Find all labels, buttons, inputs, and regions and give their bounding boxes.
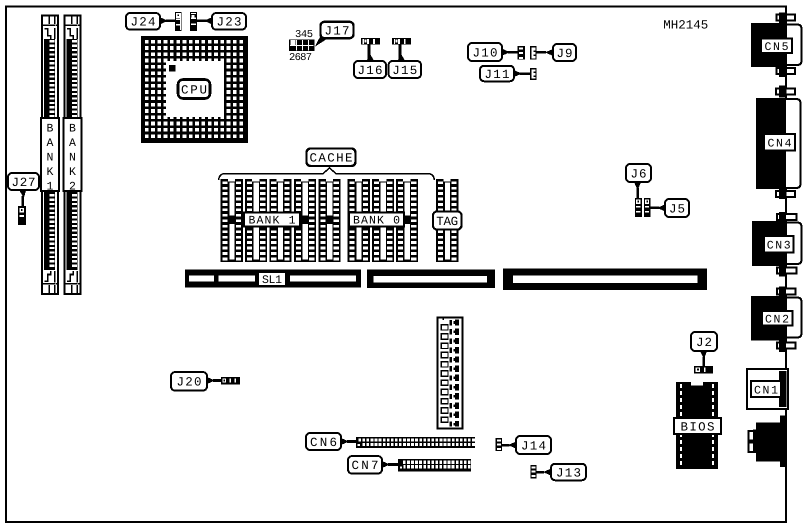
svg-text:CN3: CN3	[767, 240, 791, 253]
svg-text:CPU: CPU	[181, 83, 207, 97]
svg-text:TAG: TAG	[436, 215, 458, 229]
svg-text:CN1: CN1	[754, 384, 778, 397]
svg-text:2: 2	[69, 181, 76, 194]
svg-text:CN5: CN5	[765, 41, 789, 54]
svg-text:BIOS: BIOS	[681, 420, 715, 434]
svg-text:A: A	[69, 137, 76, 150]
svg-text:1: 1	[47, 181, 54, 194]
svg-text:K: K	[69, 166, 76, 179]
svg-text:N: N	[69, 152, 76, 165]
svg-text:2687: 2687	[289, 52, 312, 64]
svg-text:J5: J5	[669, 202, 685, 216]
svg-text:N: N	[47, 152, 54, 165]
svg-text:J2: J2	[696, 336, 712, 350]
svg-text:J20: J20	[177, 376, 202, 390]
svg-text:J13: J13	[556, 466, 581, 480]
svg-text:CN7: CN7	[352, 459, 379, 473]
svg-text:B: B	[47, 123, 54, 136]
svg-text:CN2: CN2	[765, 313, 789, 326]
svg-text:CN6: CN6	[310, 436, 337, 450]
svg-text:J17: J17	[325, 24, 350, 38]
svg-text:J27: J27	[12, 176, 36, 190]
svg-text:BANK 1: BANK 1	[249, 214, 296, 227]
svg-text:J23: J23	[217, 16, 242, 30]
svg-text:K: K	[47, 166, 54, 179]
svg-text:345: 345	[295, 29, 313, 41]
svg-text:J15: J15	[392, 64, 417, 78]
svg-text:CN4: CN4	[768, 138, 792, 151]
svg-text:J14: J14	[521, 439, 546, 453]
svg-text:J10: J10	[473, 46, 498, 60]
svg-text:B: B	[69, 123, 76, 136]
svg-text:A: A	[47, 137, 54, 150]
svg-text:J11: J11	[485, 68, 510, 82]
svg-text:BANK 0: BANK 0	[353, 214, 400, 227]
svg-text:J24: J24	[131, 16, 156, 30]
svg-text:CACHE: CACHE	[310, 152, 353, 166]
svg-text:SL1: SL1	[262, 274, 282, 287]
svg-text:J6: J6	[631, 167, 647, 181]
svg-text:MH2145: MH2145	[663, 19, 708, 33]
svg-text:J16: J16	[358, 64, 383, 78]
svg-text:J9: J9	[557, 47, 573, 61]
